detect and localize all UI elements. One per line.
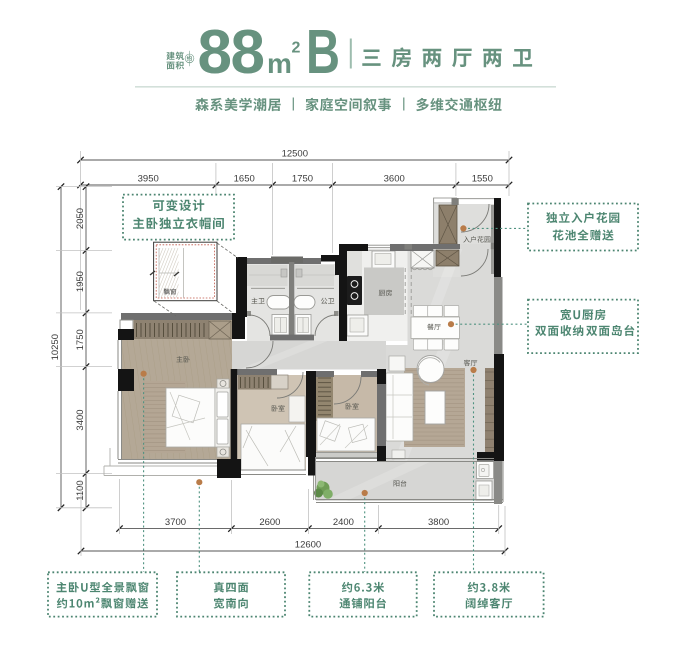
- svg-text:3400: 3400: [75, 409, 86, 430]
- svg-text:12500: 12500: [282, 149, 308, 160]
- svg-text:1750: 1750: [75, 329, 86, 350]
- svg-text:3800: 3800: [428, 517, 449, 528]
- svg-text:2600: 2600: [259, 517, 280, 528]
- svg-text:1550: 1550: [472, 174, 493, 185]
- svg-text:1950: 1950: [75, 271, 86, 292]
- svg-text:B: B: [306, 18, 340, 87]
- svg-text:12600: 12600: [295, 540, 321, 551]
- svg-text:3600: 3600: [384, 174, 405, 185]
- svg-text:m: m: [267, 48, 292, 79]
- svg-text:2050: 2050: [75, 208, 86, 229]
- svg-text:10250: 10250: [50, 334, 61, 360]
- svg-text:3950: 3950: [138, 174, 159, 185]
- svg-text:88: 88: [198, 18, 264, 87]
- svg-text:2400: 2400: [333, 517, 354, 528]
- svg-text:3700: 3700: [165, 517, 186, 528]
- svg-text:1100: 1100: [75, 480, 86, 500]
- svg-text:2: 2: [292, 40, 301, 57]
- svg-text:1750: 1750: [292, 174, 313, 185]
- svg-text:1650: 1650: [234, 174, 255, 185]
